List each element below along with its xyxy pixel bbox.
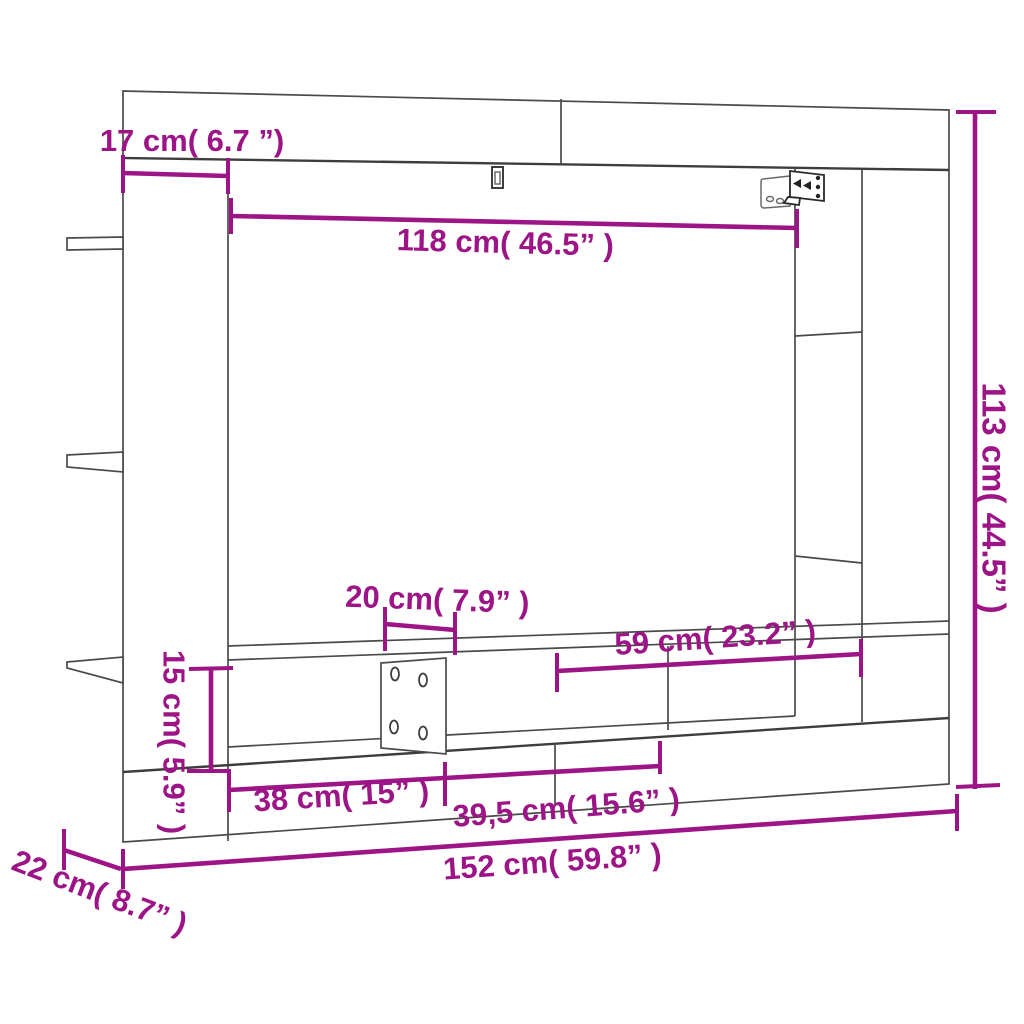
diagram-canvas: 17 cm( 6.7 ”) 118 cm( 46.5” ) 113 cm( 44… xyxy=(0,0,1024,1024)
dim-total-height: 113 cm( 44.5” ) xyxy=(956,112,1013,789)
dim-depth-label: 22 cm( 8.7” ) xyxy=(7,843,192,942)
dim-opening-width-label: 118 cm( 46.5” ) xyxy=(396,222,614,263)
side-shelf-bottom xyxy=(67,657,123,683)
side-shelf-top xyxy=(67,237,123,250)
dim-total-height-label: 113 cm( 44.5” ) xyxy=(976,382,1013,613)
fitting-hole xyxy=(391,668,399,681)
keyhole-slot-icon xyxy=(492,167,503,188)
dim-depth: 22 cm( 8.7” ) xyxy=(7,829,192,942)
cabinet-outline xyxy=(67,91,949,842)
fitting-hole xyxy=(419,674,427,687)
dim-shelf-opening-height-label: 15 cm( 5.9” ) xyxy=(157,650,192,834)
dimension-diagram: 17 cm( 6.7 ”) 118 cm( 46.5” ) 113 cm( 44… xyxy=(0,0,1024,1024)
fitting-hole xyxy=(390,721,398,734)
dim-shelf-spacing-label: 20 cm( 7.9” ) xyxy=(345,579,530,620)
fitting-hole xyxy=(419,727,427,740)
side-shelf-middle xyxy=(67,452,123,472)
dim-top-side-width-label: 17 cm( 6.7 ”) xyxy=(100,123,284,158)
